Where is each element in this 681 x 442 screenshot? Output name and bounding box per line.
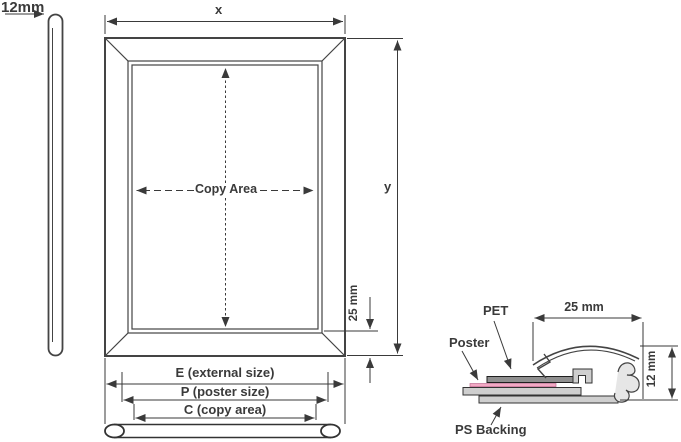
miter-bottom-right: [322, 333, 345, 356]
front-view-dimensions: [5, 14, 403, 424]
poster-size-dim-label: P (poster size): [150, 385, 300, 399]
section-view: [463, 346, 639, 403]
drawing-linework: [0, 0, 681, 442]
pet-sheet: [487, 377, 573, 383]
width-dim-label: x: [215, 3, 222, 17]
copy-area-label: Copy Area: [189, 183, 263, 196]
snap-frame-technical-drawing: 12mm x y Copy Area 25 mm E (external siz…: [0, 0, 681, 442]
copy-area-dim-label: C (copy area): [150, 403, 300, 417]
copy-area-centerlines: [137, 68, 314, 327]
extrusion-step: [573, 369, 592, 383]
pet-leader-arrow: [494, 321, 511, 369]
bottom-profile: [105, 425, 340, 438]
face-width-dim-label: 25 mm: [348, 283, 360, 323]
ps-backing-panel: [463, 388, 581, 396]
profile-width-dim-label: 25 mm: [552, 301, 616, 314]
backing-label: PS Backing: [455, 423, 527, 437]
snap-cover-inner-arc: [537, 350, 635, 368]
miter-top-right: [322, 38, 345, 61]
poster-sheet: [470, 384, 556, 387]
depth-dim-label: 12mm: [1, 0, 44, 16]
bottom-profile-cap-right: [321, 425, 340, 438]
miter-bottom-left: [105, 333, 128, 356]
poster-leader-arrow: [462, 351, 478, 380]
extrusion-lower-arm: [479, 396, 618, 403]
poster-label: Poster: [449, 336, 489, 350]
side-profile-outline: [49, 15, 63, 356]
height-dim-label: y: [384, 180, 391, 194]
pet-label: PET: [483, 304, 508, 318]
bottom-profile-cap-left: [105, 425, 124, 438]
snap-hinge-curl: [614, 363, 639, 402]
profile-depth-dim-label: 12 mm: [646, 344, 658, 394]
external-size-dim-label: E (external size): [150, 366, 300, 380]
miter-top-left: [105, 38, 128, 61]
